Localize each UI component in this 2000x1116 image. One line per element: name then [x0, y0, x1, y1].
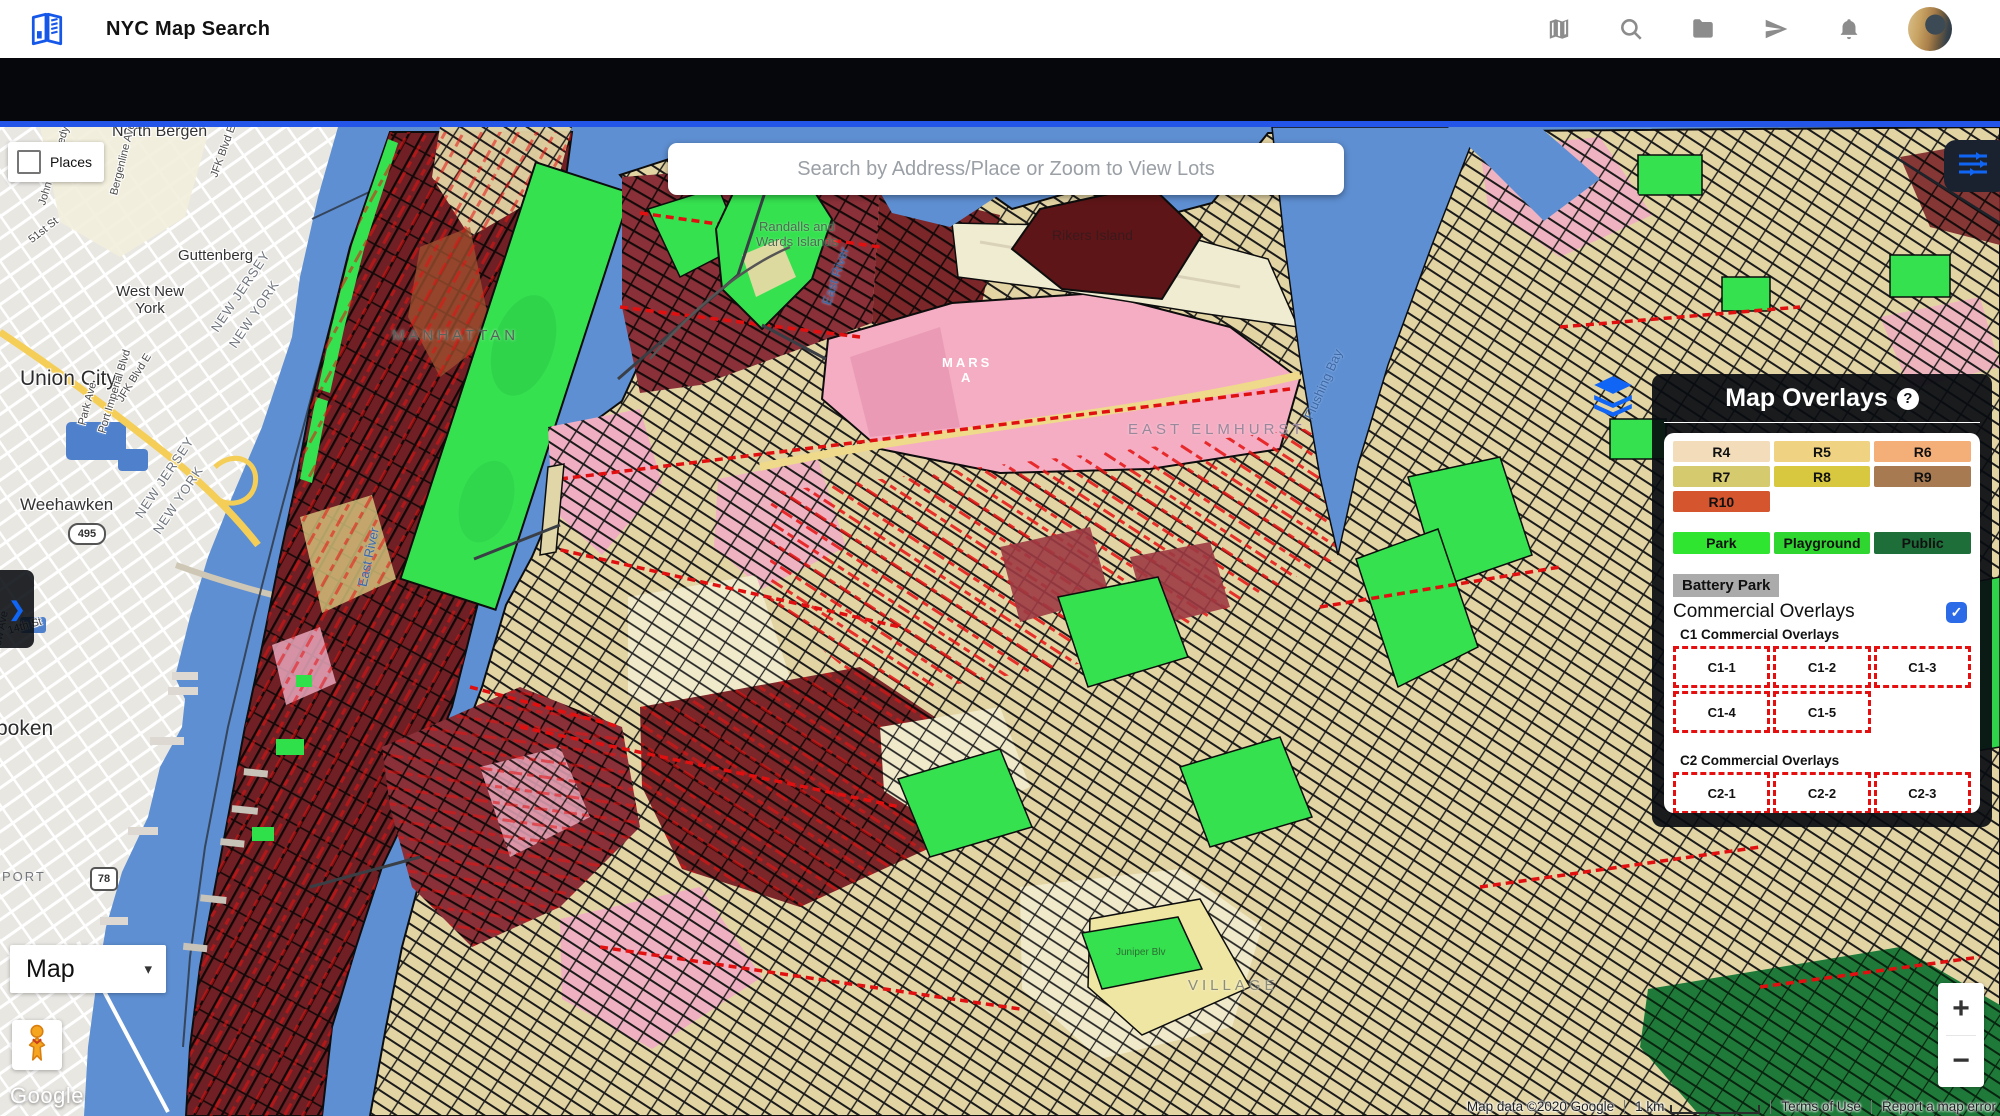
terms-link[interactable]: Terms of Use [1781, 1099, 1861, 1114]
legend-chip-r7: R7 [1673, 466, 1770, 487]
google-logo[interactable]: Google [10, 1083, 84, 1109]
map-attribution: Map data ©2020 Google 1 km Terms of Use … [1467, 1099, 1996, 1114]
filter-button[interactable] [1944, 140, 2000, 192]
legend-chip-c2-2: C2-2 [1773, 772, 1870, 813]
accent-divider [0, 121, 2000, 127]
page-title: NYC Map Search [106, 18, 270, 41]
battery-park-chip[interactable]: Battery Park [1673, 574, 1779, 597]
legend-chip-park: Park [1673, 532, 1770, 554]
legend-chip-r4: R4 [1673, 441, 1770, 462]
legend-box: R4R5R6R7R8R9R10 ParkPlaygroundPublic Bat… [1664, 433, 1980, 813]
scale-control: 1 km [1635, 1099, 1760, 1114]
panel-divider [1664, 422, 1980, 423]
legend-chip-c1-3: C1-3 [1874, 646, 1971, 688]
legend-chip-c2-3: C2-3 [1874, 772, 1971, 813]
layers-button[interactable] [1590, 375, 1638, 419]
residential-legend: R4R5R6R7R8R9R10 [1673, 441, 1971, 512]
legend-chip-playground: Playground [1774, 532, 1871, 554]
legend-chip-r6: R6 [1874, 441, 1971, 462]
avatar[interactable] [1908, 7, 1952, 51]
legend-chip-r8: R8 [1774, 466, 1871, 487]
c1-legend: C1-1C1-2C1-3C1-4C1-5 [1673, 646, 1971, 733]
legend-chip-c1-4: C1-4 [1673, 691, 1770, 733]
legend-chip-c2-1: C2-1 [1673, 772, 1770, 813]
parks-legend: ParkPlaygroundPublic [1673, 532, 1971, 554]
toolbar-strip [0, 58, 2000, 121]
legend-chip-c1-1: C1-1 [1673, 646, 1770, 688]
zoom-in-button[interactable]: + [1938, 983, 1984, 1035]
map-overlays-panel: Map Overlays ? R4R5R6R7R8R9R10 ParkPlayg… [1652, 374, 1992, 827]
places-label: Places [50, 154, 92, 170]
legend-chip-c1-5: C1-5 [1773, 691, 1870, 733]
scale-label: 1 km [1635, 1099, 1664, 1114]
legend-chip-r9: R9 [1874, 466, 1971, 487]
report-error-link[interactable]: Report a map error [1882, 1099, 1996, 1114]
bell-icon[interactable] [1836, 16, 1862, 42]
pegman-icon [23, 1024, 51, 1067]
legend-chip-public: Public [1874, 532, 1971, 554]
search-bar[interactable] [668, 143, 1344, 195]
places-toggle[interactable]: Places [8, 142, 104, 182]
search-input[interactable] [668, 157, 1344, 182]
zoom-out-button[interactable]: − [1938, 1036, 1984, 1088]
pegman-button[interactable] [12, 1020, 62, 1070]
top-bar: NYC Map Search [0, 0, 2000, 58]
zoom-control: + − [1938, 983, 1984, 1087]
map-type-control[interactable]: Map ▾ [10, 945, 166, 993]
c2-legend: C2-1C2-2C2-3 [1673, 772, 1971, 813]
layers-icon [1590, 404, 1636, 421]
commercial-overlays-checkbox[interactable]: ✓ [1946, 602, 1967, 623]
attribution-separator [1624, 1100, 1625, 1114]
commercial-overlays-label: Commercial Overlays [1673, 601, 1855, 623]
scale-bar [1670, 1105, 1760, 1114]
map-data-credit: Map data ©2020 Google [1467, 1099, 1614, 1114]
attribution-separator [1770, 1100, 1771, 1114]
app-logo-icon[interactable] [28, 11, 66, 47]
map-type-label: Map [26, 955, 75, 984]
legend-chip-c1-2: C1-2 [1773, 646, 1870, 688]
legend-chip-r10: R10 [1673, 491, 1770, 512]
map-canvas[interactable]: North BergenGuttenbergWest New YorkUnion… [0, 127, 2000, 1116]
panel-title: Map Overlays [1725, 384, 1888, 413]
side-drawer-tab[interactable]: ❯ [0, 570, 34, 648]
legend-chip-r5: R5 [1774, 441, 1871, 462]
sliders-icon [1956, 151, 1990, 182]
help-icon[interactable]: ? [1897, 388, 1919, 410]
attribution-separator [1871, 1100, 1872, 1114]
folder-icon[interactable] [1690, 16, 1716, 42]
send-icon[interactable] [1762, 16, 1790, 42]
chevron-down-icon: ▾ [144, 960, 152, 978]
chevron-right-icon: ❯ [9, 597, 26, 622]
c2-heading: C2 Commercial Overlays [1680, 753, 1971, 768]
c1-heading: C1 Commercial Overlays [1680, 627, 1971, 642]
search-icon[interactable] [1618, 16, 1644, 42]
places-checkbox[interactable] [17, 150, 41, 174]
map-icon[interactable] [1546, 16, 1572, 42]
